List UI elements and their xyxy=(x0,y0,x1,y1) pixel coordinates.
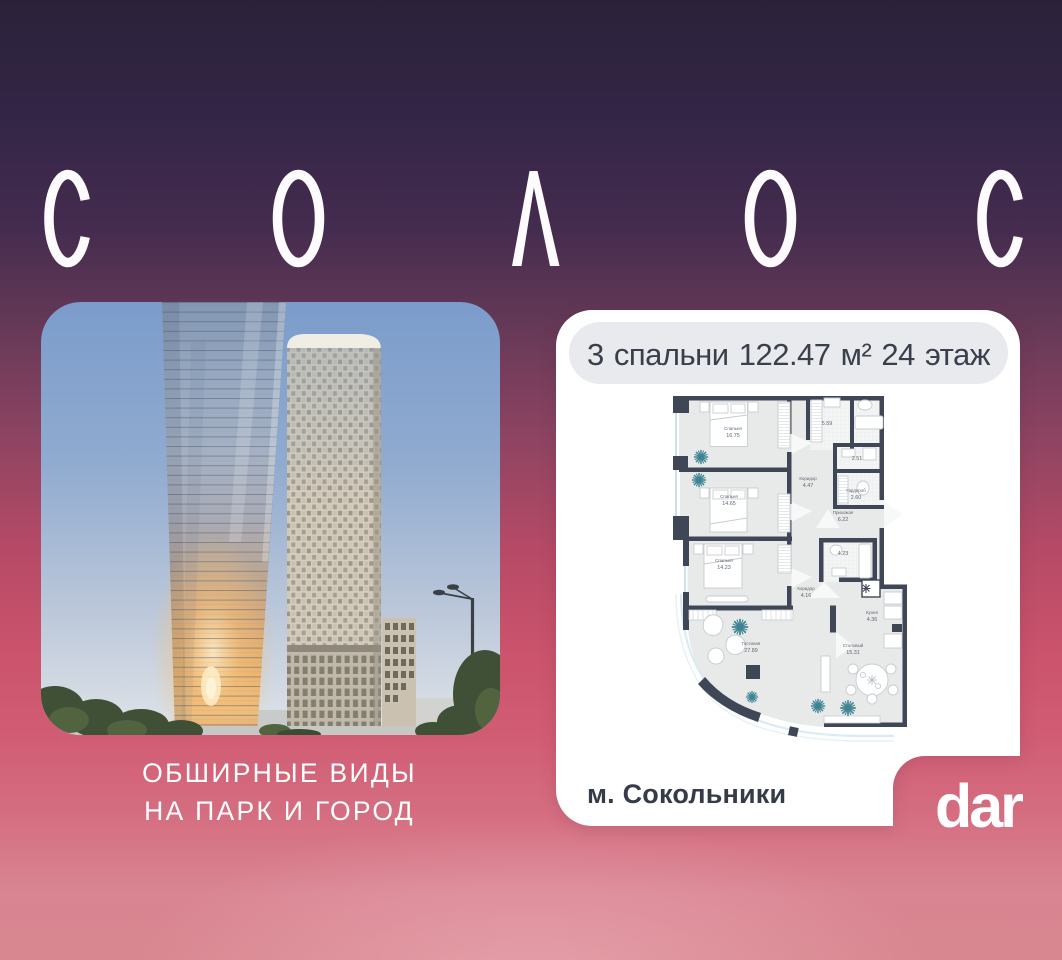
svg-text:6.22: 6.22 xyxy=(838,517,849,523)
svg-text:4.36: 4.36 xyxy=(867,617,878,623)
svg-text:Столовый: Столовый xyxy=(843,643,864,648)
svg-text:Гостиная: Гостиная xyxy=(742,641,761,646)
svg-text:Гардероб: Гардероб xyxy=(846,488,866,493)
svg-text:16.75: 16.75 xyxy=(726,433,740,439)
svg-text:4.23: 4.23 xyxy=(838,551,849,557)
svg-text:Спальня: Спальня xyxy=(715,558,733,563)
svg-text:Спальня: Спальня xyxy=(724,426,742,431)
svg-text:15.31: 15.31 xyxy=(846,650,860,656)
svg-text:5.59: 5.59 xyxy=(822,421,833,427)
svg-text:Кухня: Кухня xyxy=(866,610,878,615)
svg-text:Прихожая: Прихожая xyxy=(833,510,854,515)
svg-text:4.47: 4.47 xyxy=(803,483,814,489)
svg-text:4.16: 4.16 xyxy=(801,593,812,599)
svg-text:27.89: 27.89 xyxy=(744,648,758,654)
svg-text:2.60: 2.60 xyxy=(851,495,862,501)
svg-text:2.51: 2.51 xyxy=(852,456,863,462)
svg-text:Коридор: Коридор xyxy=(799,476,817,481)
svg-text:14.23: 14.23 xyxy=(717,565,731,571)
svg-text:Коридор: Коридор xyxy=(797,586,815,591)
svg-text:Спальня: Спальня xyxy=(720,494,738,499)
svg-text:14.65: 14.65 xyxy=(722,501,736,507)
